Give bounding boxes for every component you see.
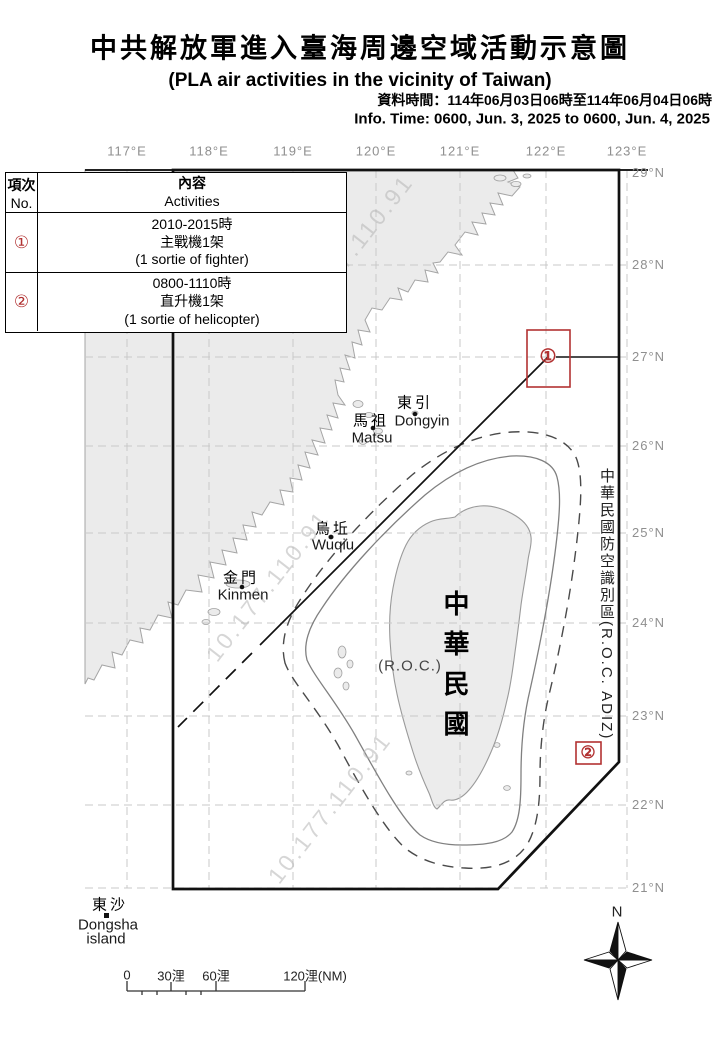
scale-label-0: 0	[123, 968, 130, 983]
lat-label-25n: 25°N	[632, 525, 665, 540]
scale-label-60: 60浬	[202, 966, 229, 985]
row1-number: ①	[14, 233, 29, 253]
activity-table-header: 項次 No. 內容 Activities	[6, 173, 346, 213]
activity-table: 項次 No. 內容 Activities ① 2010-2015時 主戰機1架 …	[5, 172, 347, 333]
scale-label-120: 120浬(NM)	[283, 966, 347, 985]
table-row: ② 0800-1110時 直升機1架 (1 sortie of helicopt…	[6, 273, 346, 331]
dongsha-label-zh: 東沙	[92, 894, 128, 915]
activity-marker-1: ①	[539, 346, 556, 369]
wuqiu-label-zh: 烏坵	[315, 518, 351, 539]
compass-north-label: N	[612, 904, 623, 921]
matsu-label-zh: 馬祖	[353, 410, 389, 431]
wuqiu-label-en: Wuqiu	[312, 537, 354, 554]
lat-label-21n: 21°N	[632, 880, 665, 895]
row1-time: 2010-2015時	[152, 216, 233, 234]
lat-label-28n: 28°N	[632, 257, 665, 272]
page-subtitle: (PLA air activities in the vicinity of T…	[168, 70, 551, 92]
dongyin-label-en: Dongyin	[394, 413, 449, 430]
info-time-en: Info. Time: 0600, Jun. 3, 2025 to 0600, …	[354, 111, 710, 128]
lat-label-26n: 26°N	[632, 438, 665, 453]
roc-adiz-label: 中華民國防空識別區(R.O.C. ADIZ)	[596, 468, 617, 740]
matsu-label-en: Matsu	[352, 430, 393, 447]
lat-label-29n: 29°N	[632, 165, 665, 180]
lon-label-118e: 118°E	[189, 144, 229, 159]
col-no-en: No.	[11, 195, 33, 211]
kinmen-label-zh: 金門	[223, 567, 259, 588]
row2-number: ②	[14, 292, 29, 312]
row1-type-en: (1 sortie of fighter)	[135, 251, 249, 269]
lon-label-119e: 119°E	[273, 144, 313, 159]
lat-label-22n: 22°N	[632, 797, 665, 812]
lon-label-123e: 123°E	[607, 144, 648, 159]
kinmen-label-en: Kinmen	[218, 587, 269, 604]
col-act-en: Activities	[164, 193, 219, 211]
lat-label-24n: 24°N	[632, 615, 665, 630]
lat-label-27n: 27°N	[632, 349, 665, 364]
col-no-zh: 項次	[8, 175, 36, 195]
compass-rose-icon	[584, 922, 652, 1000]
info-time-zh: 資料時間：114年06月03日06時至114年06月04日06時	[377, 90, 712, 110]
taiwan-label-roc: (R.O.C.)	[378, 658, 442, 675]
dongsha-label-en2: island	[86, 931, 125, 948]
dongyin-label-zh: 東引	[397, 392, 433, 413]
col-act-zh: 內容	[178, 175, 206, 193]
row2-type-en: (1 sortie of helicopter)	[124, 311, 259, 329]
lon-label-122e: 122°E	[526, 144, 567, 159]
row2-type-zh: 直升機1架	[160, 293, 224, 311]
lat-label-23n: 23°N	[632, 708, 665, 723]
lon-label-120e: 120°E	[356, 144, 397, 159]
lon-label-117e: 117°E	[107, 144, 147, 159]
row2-time: 0800-1110時	[153, 275, 232, 293]
activity-marker-2: ②	[580, 743, 595, 763]
row1-type-zh: 主戰機1架	[160, 234, 224, 252]
scale-label-30: 30浬	[157, 966, 184, 985]
page-title: 中共解放軍進入臺海周邊空域活動示意圖	[90, 27, 630, 66]
lon-label-121e: 121°E	[440, 144, 481, 159]
pla-activity-map-page: 中共解放軍進入臺海周邊空域活動示意圖 (PLA air activities i…	[0, 0, 720, 1040]
table-row: ① 2010-2015時 主戰機1架 (1 sortie of fighter)	[6, 213, 346, 273]
